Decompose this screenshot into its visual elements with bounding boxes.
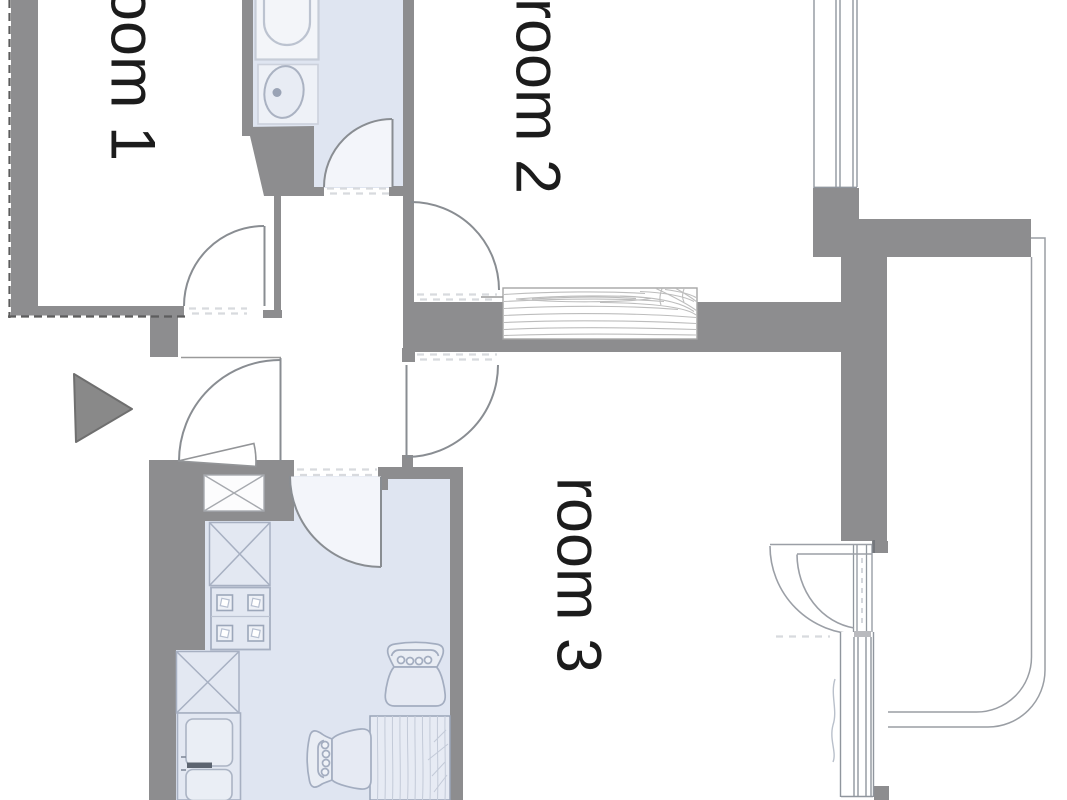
svg-text:room 2: room 2: [503, 0, 573, 194]
svg-text:room 1: room 1: [98, 0, 168, 161]
svg-text:room 3: room 3: [544, 477, 614, 673]
